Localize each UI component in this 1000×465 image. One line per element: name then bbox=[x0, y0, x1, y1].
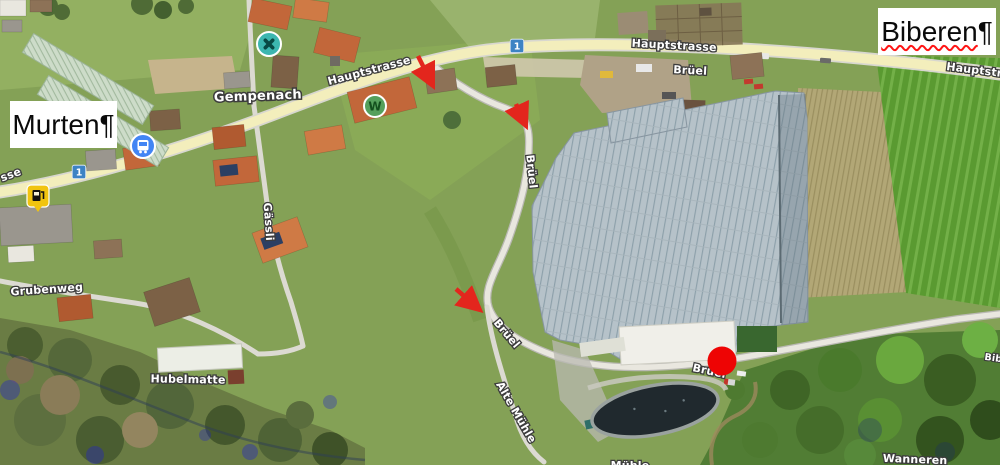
svg-text:1: 1 bbox=[514, 41, 521, 52]
murten-textbox[interactable]: Murten¶ bbox=[10, 101, 117, 148]
svg-text:W: W bbox=[368, 100, 381, 114]
field-label-hubelmatte: Hubelmatte bbox=[150, 372, 225, 386]
biberen-textbox[interactable]: Biberen¶ bbox=[878, 8, 996, 55]
map-image[interactable]: Hauptstrasse Hauptstrasse Hauptstra sse … bbox=[0, 0, 1000, 465]
field-label-wanneren: Wanneren bbox=[883, 452, 948, 465]
document-page: Hauptstrasse Hauptstrasse Hauptstra sse … bbox=[0, 0, 1000, 465]
route-1-shield-north: 1 bbox=[510, 39, 524, 53]
pilcrow-mark: ¶ bbox=[100, 111, 115, 139]
murten-label: Murten bbox=[12, 111, 99, 139]
street-label-brueel-north: Brüel bbox=[673, 63, 708, 78]
locality-label-gempenach: Gempenach bbox=[214, 87, 302, 105]
pilcrow-mark: ¶ bbox=[978, 18, 993, 46]
restaurant-icon bbox=[257, 32, 281, 56]
white-greenhouse bbox=[157, 344, 242, 372]
poi-w-icon: W bbox=[364, 95, 386, 117]
street-label-gaessli: Gässli bbox=[261, 202, 277, 241]
biberen-label: Biberen bbox=[881, 18, 978, 46]
bus-stop-icon bbox=[131, 134, 155, 158]
street-label-muehle-partial: Mühle bbox=[611, 459, 650, 465]
route-1-shield-west: 1 bbox=[72, 165, 86, 179]
red-location-dot bbox=[708, 347, 737, 376]
svg-text:1: 1 bbox=[76, 167, 83, 178]
